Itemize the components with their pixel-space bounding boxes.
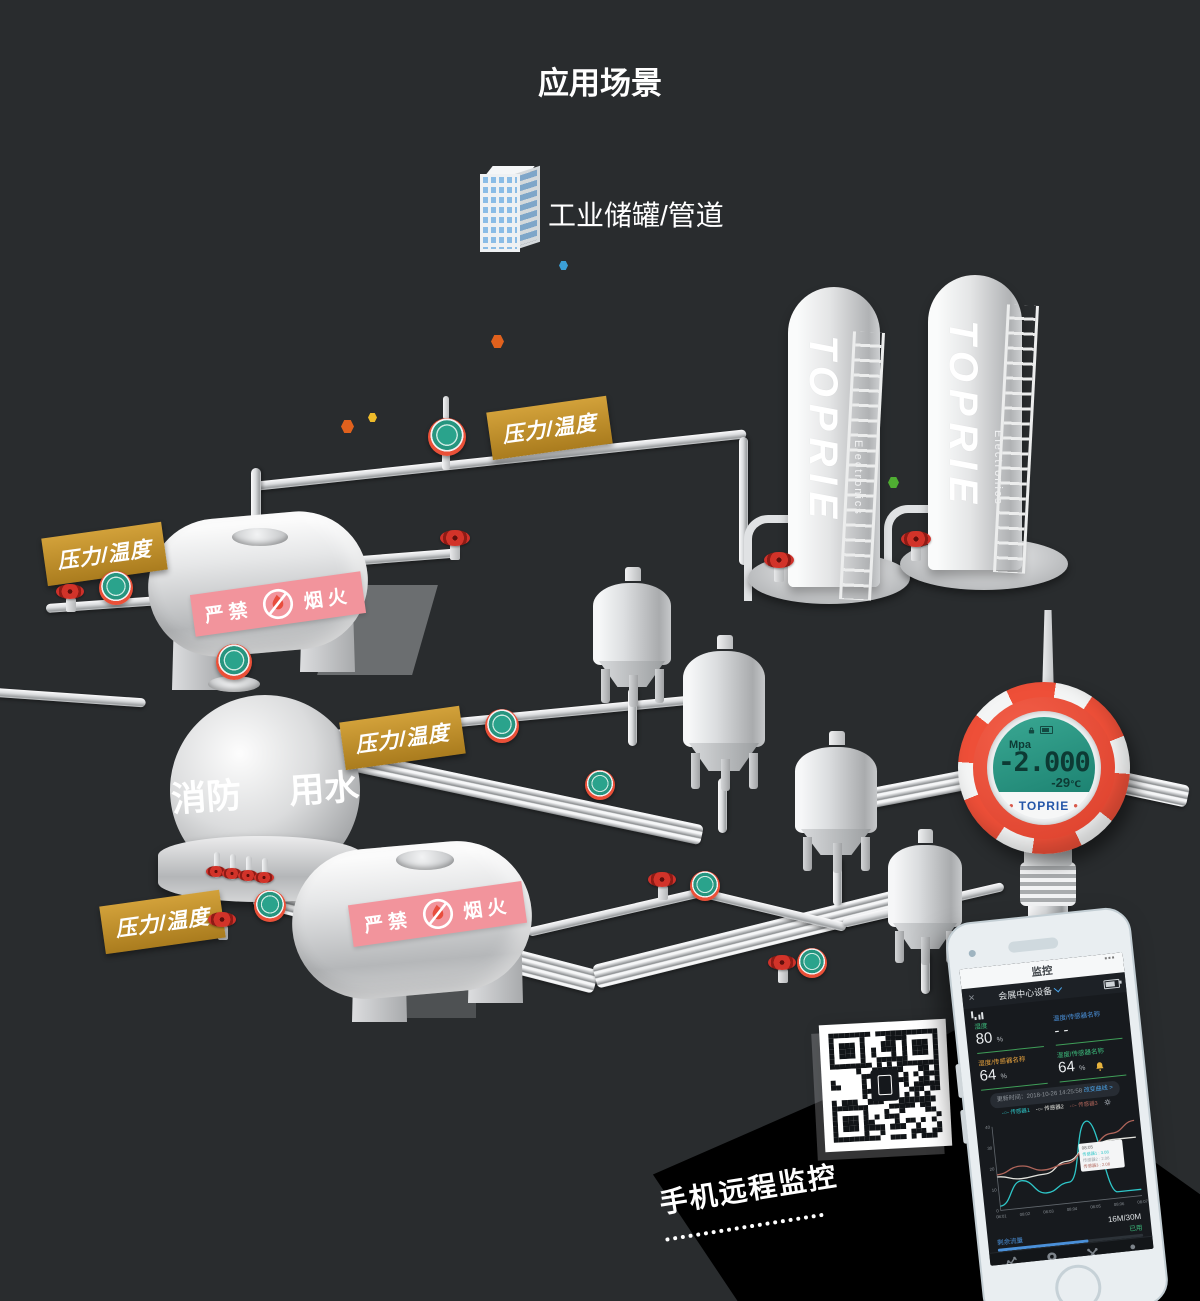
tank-nozzle <box>918 829 933 843</box>
more-icon[interactable]: ⋯ <box>1103 952 1115 965</box>
lcd-display: Mpa -2.000 -29℃ <box>993 717 1095 792</box>
pipe <box>0 688 146 707</box>
tank-leg <box>861 837 870 871</box>
lcd-temp-value: -29 <box>1051 775 1070 790</box>
valve-stem <box>911 545 921 561</box>
small-tank <box>593 573 671 703</box>
gauge-pole <box>443 396 449 420</box>
pipe-sensor-gauge <box>690 871 720 901</box>
tank-leg <box>803 837 812 871</box>
metric-value: 64 % <box>1057 1054 1126 1080</box>
alarm-bell-icon <box>1095 1060 1105 1071</box>
lcd-temp-unit: ℃ <box>1070 779 1081 789</box>
valve-wheel-icon <box>440 530 470 546</box>
svg-text:08:01: 08:01 <box>996 1213 1008 1219</box>
scene-stage: 应用场景 工业储罐/管道 TOPRIE Electronics <box>0 0 1200 1301</box>
battery-icon <box>1103 978 1120 989</box>
tank-flange <box>232 528 288 546</box>
page-title: 应用场景 <box>0 58 1200 103</box>
lcd-temp: -29℃ <box>1051 775 1081 790</box>
battery-icon <box>1040 726 1053 734</box>
tank-nozzle <box>717 635 733 649</box>
used-label: 已用 <box>1129 1222 1143 1233</box>
sensor-lcd: Mpa -2.000 -29℃ ● TOPRIE ● <box>993 717 1095 819</box>
sensor-thread <box>1020 862 1076 906</box>
svg-text:08:03: 08:03 <box>1043 1208 1055 1214</box>
tank-leg <box>655 669 664 703</box>
tank-leg <box>629 675 638 707</box>
change-curve-link[interactable]: 改变曲线 > <box>1084 1085 1114 1094</box>
no-fire-right-text: 烟火 <box>461 890 512 923</box>
pipe-sensor-gauge <box>485 709 519 743</box>
tank-leg <box>601 669 610 703</box>
valve-wheel-icon <box>56 584 84 599</box>
chevron-down-icon <box>1054 984 1062 992</box>
line-chart: 01020304008:0108:0208:0308:0408:0508:060… <box>975 1103 1149 1228</box>
svg-text:08:07: 08:07 <box>1137 1198 1149 1204</box>
remain-label: 剩余流量 <box>997 1234 1024 1247</box>
small-tank <box>683 641 765 791</box>
svg-text:0: 0 <box>996 1208 1000 1213</box>
pipe <box>527 888 704 937</box>
device-glyph-icon <box>878 1075 893 1096</box>
no-fire-left-text: 严禁 <box>203 594 254 627</box>
tank-body <box>888 845 962 927</box>
lcd-value: -2.000 <box>993 747 1095 778</box>
svg-text:08:05: 08:05 <box>1090 1203 1102 1209</box>
qr-code <box>819 1019 952 1152</box>
building-icon <box>478 164 540 252</box>
tank-leg <box>691 753 700 789</box>
pipe-sensor-gauge <box>585 770 615 800</box>
pressure-temp-label-4: 压力/温度 <box>99 890 225 954</box>
small-tank <box>795 737 877 872</box>
metric-value: - - <box>1054 1017 1123 1043</box>
app-title: 监控 <box>1031 962 1053 979</box>
valve-stem <box>66 598 76 612</box>
metric-value: 80 % <box>975 1025 1044 1051</box>
tank-leg <box>895 931 904 963</box>
pipe-sensor-gauge <box>254 890 286 922</box>
smartphone: 监控 ⋯ × 会展中心设备 湿度 80 % <box>944 905 1171 1301</box>
pipe-sensor-gauge <box>216 644 252 680</box>
svg-text:08:06: 08:06 <box>1114 1201 1126 1207</box>
tank-body <box>795 747 877 833</box>
valve-stem <box>778 969 788 983</box>
antenna-mast-icon <box>971 1011 973 1018</box>
sensor-brand-text: TOPRIE <box>1019 799 1069 813</box>
svg-text:20: 20 <box>989 1166 995 1172</box>
scene-label: 工业储罐/管道 <box>548 194 724 234</box>
chart-area: 01020304008:0108:0208:0308:0408:0508:060… <box>975 1103 1149 1228</box>
metric-cell: 湿度 80 % <box>974 1015 1044 1054</box>
device-name: 会展中心设备 <box>998 985 1053 1001</box>
building-front <box>480 174 520 252</box>
valve-wheel-icon <box>768 955 796 970</box>
metric-value: 64 % <box>979 1062 1048 1088</box>
no-fire-right-text: 烟火 <box>302 580 353 613</box>
tank-nozzle <box>829 731 845 745</box>
tower-brand-text: TOPRIE <box>940 320 985 560</box>
tank-body <box>683 651 765 747</box>
dot-orange2-icon <box>341 420 354 433</box>
svg-text:10: 10 <box>991 1187 997 1193</box>
lock-icon <box>1028 727 1035 734</box>
no-fire-left-text: 严禁 <box>362 904 413 937</box>
dot-blue-icon <box>559 261 568 270</box>
valve-wheel-icon <box>764 552 794 568</box>
svg-text:08:04: 08:04 <box>1067 1206 1079 1212</box>
svg-text:08:02: 08:02 <box>1019 1211 1031 1217</box>
tank-nozzle <box>625 567 641 581</box>
tank-leg <box>721 759 730 791</box>
svg-text:30: 30 <box>987 1146 993 1152</box>
valve-wheel-icon <box>648 872 676 887</box>
valve-wheel-icon <box>254 872 274 883</box>
valve-wheel-icon <box>208 912 236 927</box>
valve-wheel-icon <box>901 531 931 547</box>
metric-cell: 温度/传感器名称 - - <box>1053 1007 1123 1046</box>
svg-text:40: 40 <box>985 1125 991 1131</box>
qr-center-logo <box>871 1069 901 1102</box>
close-icon[interactable]: × <box>968 992 976 1005</box>
dot-green-icon <box>888 477 899 488</box>
tank-leg <box>833 843 842 873</box>
no-fire-icon <box>260 586 296 622</box>
phone-screen: 监控 ⋯ × 会展中心设备 湿度 80 % <box>959 952 1153 1266</box>
valve-stem <box>774 566 784 582</box>
tank-leg <box>749 753 758 789</box>
sphere-text-left: 消防 <box>169 766 242 822</box>
metric-cell: 湿度/传感器名称 64 % <box>1056 1044 1126 1083</box>
tank-leg <box>921 937 930 965</box>
tank-flange <box>396 850 454 870</box>
gear-icon[interactable] <box>1103 1098 1111 1106</box>
valve-stem <box>450 544 460 560</box>
pipe-sensor-gauge <box>797 948 827 978</box>
tank-body <box>593 583 671 665</box>
metric-cell: 湿度/传感器名称 64 % <box>978 1052 1048 1091</box>
dot-yellow-icon <box>368 413 377 422</box>
tower-brand-text: TOPRIE <box>800 335 845 575</box>
no-fire-icon <box>419 896 455 932</box>
dot-orange-icon <box>491 335 504 348</box>
pipe-sensor-gauge <box>428 418 466 456</box>
pressure-temp-label-3: 压力/温度 <box>339 706 465 770</box>
pipe-bundle <box>592 882 933 989</box>
wireless-pressure-sensor: Mpa -2.000 -29℃ ● TOPRIE ● <box>958 682 1130 854</box>
valve-stem <box>658 886 668 900</box>
pipe-sensor-gauge <box>99 571 133 605</box>
